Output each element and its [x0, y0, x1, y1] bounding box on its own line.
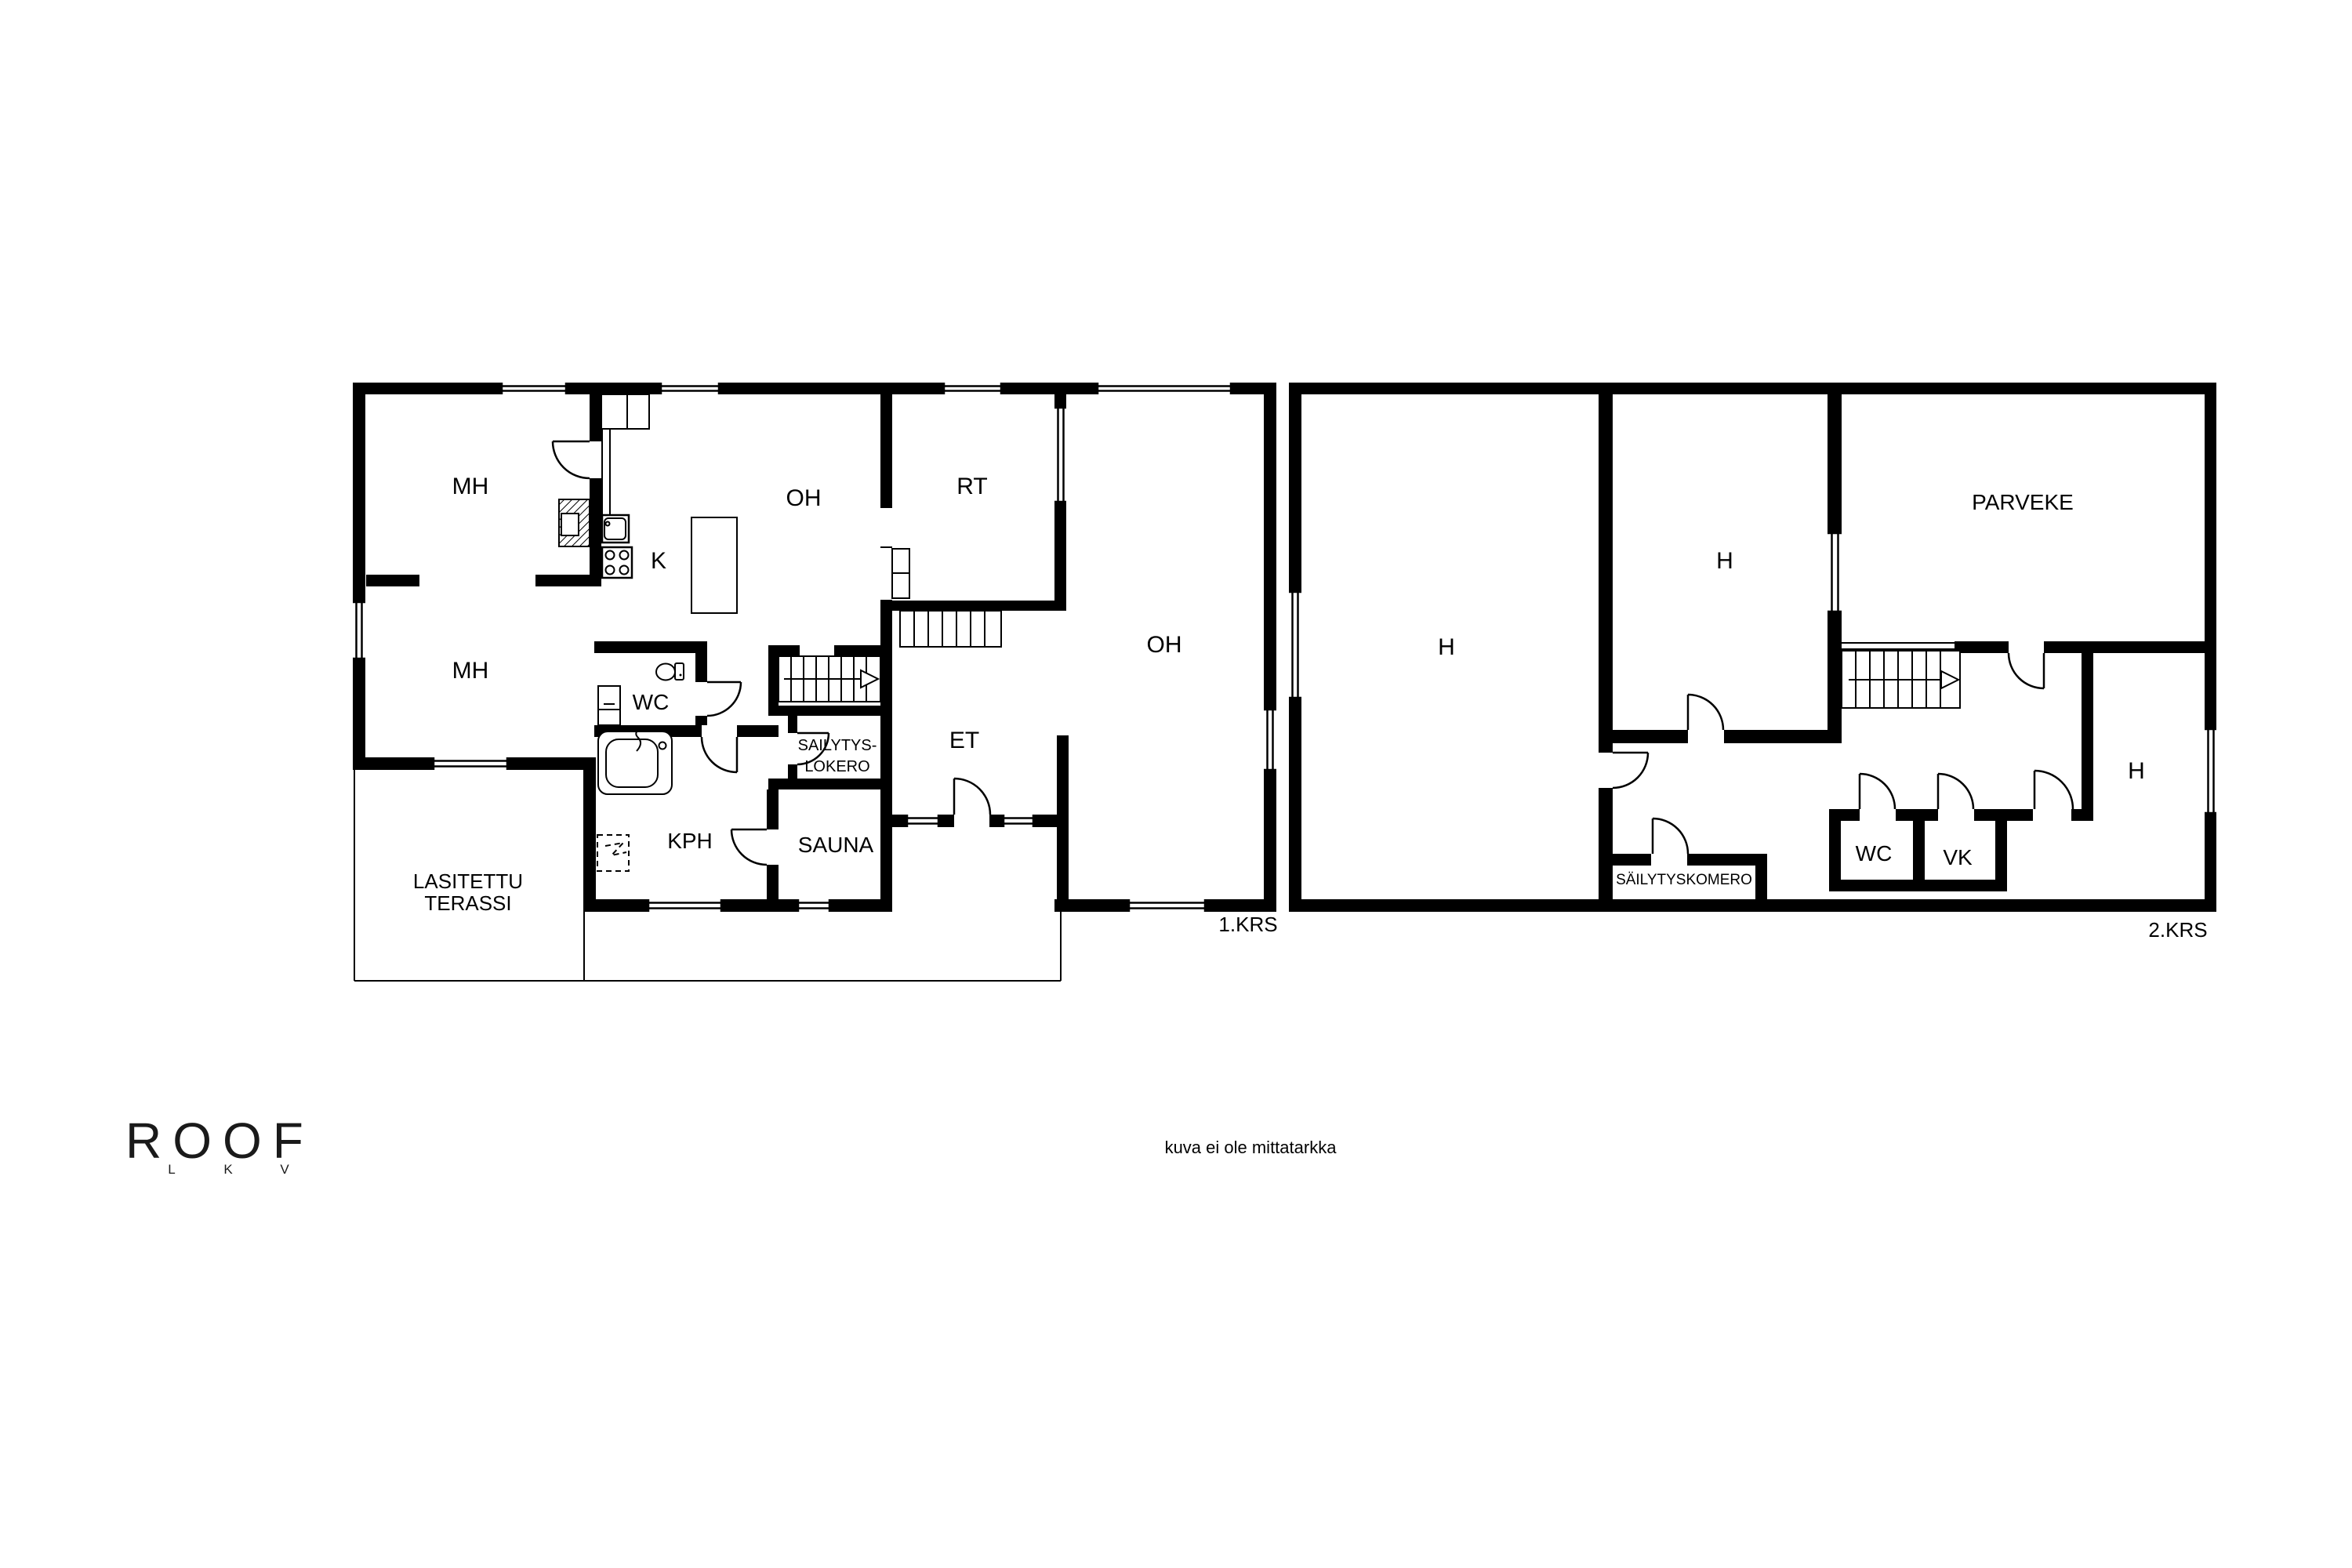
- room-label-sailytyskomero: SÄILYTYSKOMERO: [1616, 872, 1752, 888]
- room-label-h-middle: H: [1716, 548, 1733, 574]
- room-label-h-right: H: [2128, 758, 2145, 784]
- room-label-wc2: WC: [1856, 841, 1893, 866]
- room-label-sailytys-2: LOKERO: [804, 758, 869, 775]
- stair-closet: [892, 549, 909, 573]
- room-label-oh1: OH: [786, 485, 822, 511]
- kitchen-island: [691, 517, 737, 613]
- roof-logo-letter-v: V: [280, 1162, 289, 1177]
- burner: [620, 566, 629, 575]
- toilet-button: [680, 674, 682, 677]
- kph-faucet: [659, 742, 666, 750]
- room-label-sauna: SAUNA: [798, 833, 874, 857]
- room-label-oh2: OH: [1147, 632, 1182, 658]
- room-label-k: K: [651, 548, 666, 574]
- branding: ROOF L K V: [125, 1112, 314, 1177]
- roof-logo-letter-l: L: [168, 1162, 175, 1177]
- roof-logo-letter-k: K: [223, 1162, 233, 1177]
- room-label-et: ET: [949, 728, 979, 753]
- toilet-bowl: [656, 664, 675, 681]
- room-label-terassi-2: TERASSI: [424, 891, 511, 915]
- burner: [606, 551, 615, 560]
- faucet: [606, 522, 610, 526]
- floor2-label: 2.KRS: [2148, 918, 2207, 942]
- room-label-h-large: H: [1438, 634, 1455, 660]
- kitchen-counter-edge: [602, 429, 610, 515]
- floor-plan-page: MH MH K OH RT OH WC SAILYTYS- LOKERO ET …: [0, 0, 2352, 1568]
- room-label-mh2: MH: [452, 658, 489, 684]
- stair-closet: [892, 573, 909, 598]
- disclaimer-text: kuva ei ole mittatarkka: [1165, 1138, 1338, 1157]
- kitchen-counter: [601, 394, 649, 429]
- floor2-plan: H H H PARVEKE SÄILYTYSKOMERO WC VK 2.KRS: [1289, 383, 2216, 942]
- floor2-stairs: [1842, 643, 1960, 708]
- kph-fixtures: [597, 728, 672, 871]
- room-label-sailytys-1: SAILYTYS-: [798, 737, 877, 754]
- floor2-walls: [1289, 383, 2216, 912]
- room-label-rt: RT: [956, 474, 987, 499]
- floor1-label: 1.KRS: [1218, 913, 1277, 936]
- room-label-wc1: WC: [633, 690, 670, 714]
- toilet-tank: [675, 663, 684, 680]
- room-label-vk: VK: [1943, 845, 1973, 869]
- room-label-kph: KPH: [667, 829, 713, 853]
- roof-logo: ROOF: [125, 1112, 314, 1169]
- floor1-plan: MH MH K OH RT OH WC SAILYTYS- LOKERO ET …: [353, 383, 1278, 981]
- room-label-parveke: PARVEKE: [1972, 490, 2074, 514]
- wc-washbasin: [598, 686, 620, 725]
- kph-basin: [606, 739, 658, 787]
- fireplace-opening: [561, 514, 579, 535]
- burner: [620, 551, 629, 560]
- room-label-terassi-1: LASITETTU: [413, 869, 523, 893]
- room-label-mh1: MH: [452, 474, 489, 499]
- floor2-windows: [1289, 533, 2216, 813]
- burner: [606, 566, 615, 575]
- floor-plan-drawing: MH MH K OH RT OH WC SAILYTYS- LOKERO ET …: [0, 0, 2352, 1568]
